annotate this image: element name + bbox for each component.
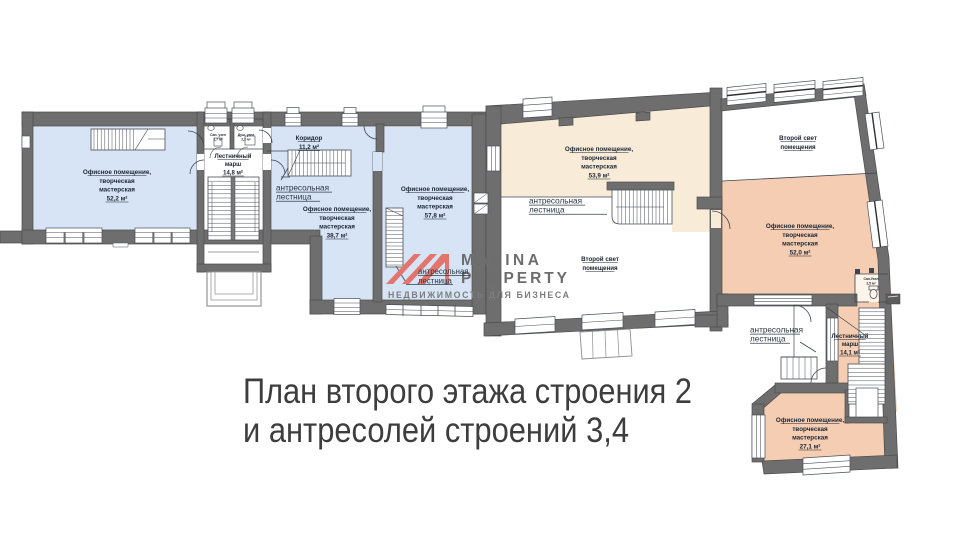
svg-text:мастерская: мастерская (792, 435, 828, 442)
svg-text:лестница: лестница (418, 276, 452, 285)
svg-text:помещения: помещения (780, 144, 816, 151)
svg-text:14,1 м²: 14,1 м² (840, 349, 860, 356)
svg-text:мастерская: мастерская (417, 204, 453, 211)
svg-text:11,2 м²: 11,2 м² (299, 144, 319, 151)
svg-text:антресольная: антресольная (418, 267, 469, 276)
svg-text:Коридор: Коридор (296, 135, 323, 142)
svg-text:Душ. узел: Душ. узел (238, 133, 255, 137)
svg-text:антресольная: антресольная (529, 197, 582, 206)
svg-text:Офисное помещение,: Офисное помещение, (303, 206, 371, 213)
svg-text:творческая: творческая (782, 232, 818, 239)
svg-text:творческая: творческая (99, 178, 135, 185)
svg-text:Лестничный: Лестничный (215, 153, 252, 160)
svg-text:помещения: помещения (582, 265, 618, 272)
svg-text:MALINA: MALINA (461, 252, 539, 269)
svg-text:НЕДВИЖИМОСТЬ ДЛЯ БИЗНЕСА: НЕДВИЖИМОСТЬ ДЛЯ БИЗНЕСА (388, 290, 570, 300)
svg-text:Сан.Узел: Сан.Узел (864, 277, 879, 281)
svg-text:Второй свет: Второй свет (779, 135, 817, 142)
svg-text:творческая: творческая (319, 215, 355, 222)
svg-text:лестница: лестница (529, 206, 565, 215)
svg-text:53,9 м²: 53,9 м² (589, 172, 610, 179)
svg-text:мастерская: мастерская (782, 241, 818, 248)
svg-text:лестница: лестница (276, 193, 312, 202)
svg-text:27,1 м²: 27,1 м² (800, 443, 821, 450)
svg-text:14,8 м²: 14,8 м² (223, 169, 243, 176)
svg-text:творческая: творческая (792, 426, 828, 433)
svg-text:лестница: лестница (750, 335, 786, 344)
svg-text:мастерская: мастерская (319, 224, 355, 231)
svg-text:Офисное помещение,: Офисное помещение, (776, 417, 844, 424)
svg-text:мастерская: мастерская (581, 164, 617, 171)
svg-text:творческая: творческая (581, 155, 617, 162)
svg-text:57,8 м²: 57,8 м² (425, 212, 446, 219)
svg-text:антресольная: антресольная (750, 326, 803, 335)
svg-text:2,5 м²: 2,5 м² (866, 281, 876, 285)
svg-text:Офисное помещение,: Офисное помещение, (83, 169, 151, 176)
svg-text:Лестничный: Лестничный (832, 333, 869, 340)
svg-text:и антресолей строений 3,4: и антресолей строений 3,4 (243, 411, 629, 450)
svg-text:2,2 м²: 2,2 м² (241, 137, 251, 141)
svg-text:Офисное помещение,: Офисное помещение, (766, 223, 834, 230)
svg-text:52,0 м²: 52,0 м² (790, 249, 811, 256)
svg-text:52,2 м²: 52,2 м² (107, 195, 128, 202)
svg-text:Офисное помещение,: Офисное помещение, (565, 146, 633, 153)
svg-text:Второй свет: Второй свет (581, 256, 619, 263)
svg-text:творческая: творческая (417, 195, 453, 202)
svg-text:38,7 м²: 38,7 м² (327, 232, 348, 239)
svg-text:Сан. узел: Сан. узел (210, 133, 226, 137)
svg-text:1,7 м²: 1,7 м² (213, 137, 223, 141)
svg-text:мастерская: мастерская (99, 187, 135, 194)
svg-text:марш: марш (225, 162, 241, 168)
svg-text:марш: марш (842, 342, 858, 348)
svg-text:План второго этажа строения 2: План второго этажа строения 2 (243, 372, 692, 411)
svg-text:Офисное помещение,: Офисное помещение, (401, 186, 469, 193)
svg-text:антресольная: антресольная (276, 184, 329, 193)
